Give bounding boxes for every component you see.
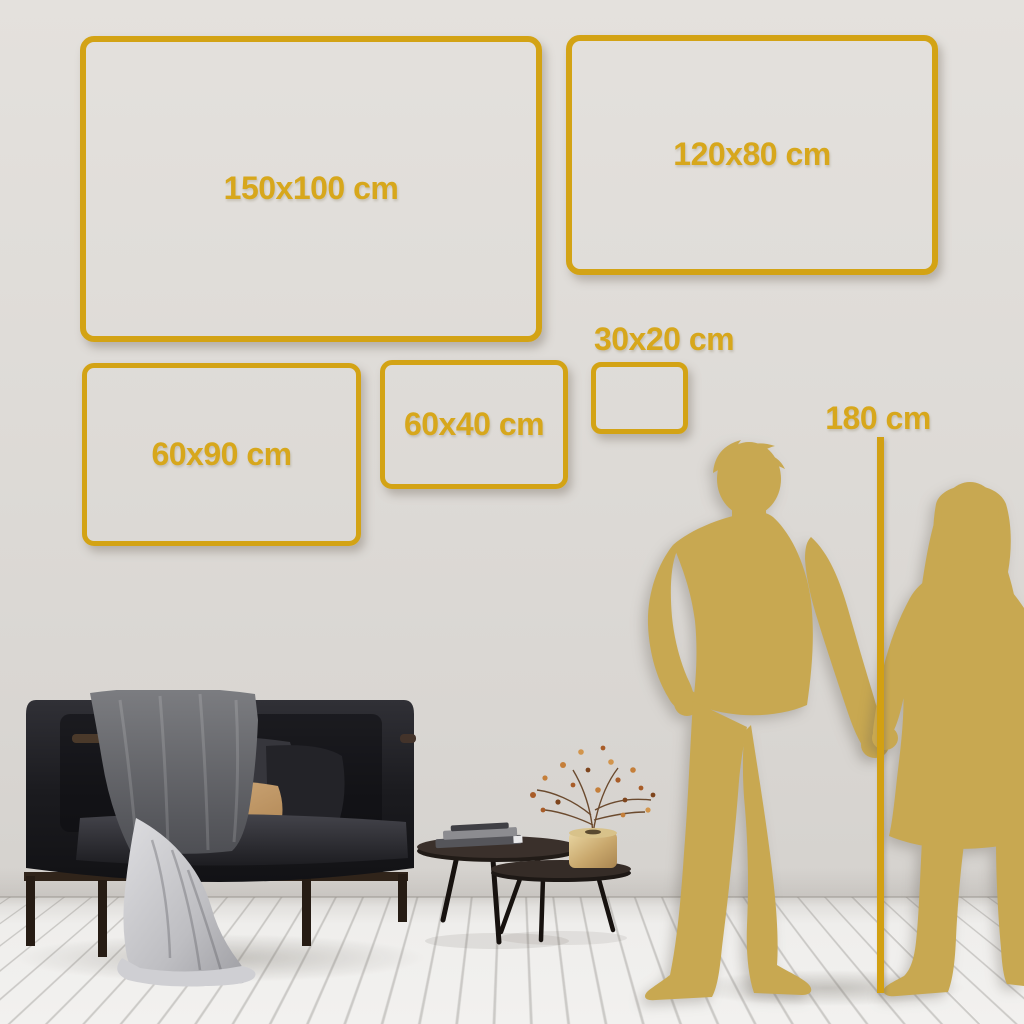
size-frame-120x80: 120x80 cm: [566, 35, 938, 275]
dried-branch: [537, 768, 651, 833]
size-frame-60x90: 60x90 cm: [82, 363, 361, 546]
stacked-books: [435, 822, 523, 849]
size-frame-30x20: [591, 362, 688, 434]
height-reference-line: [877, 437, 884, 993]
size-frame-60x40: 60x40 cm: [380, 360, 568, 489]
sofa: [10, 690, 430, 990]
coffee-tables: [413, 740, 663, 960]
size-label-120x80: 120x80 cm: [673, 137, 830, 172]
man-torso: [673, 512, 813, 715]
woman-head: [941, 482, 999, 550]
size-frame-150x100: 150x100 cm: [80, 36, 542, 342]
woman-back-leg: [996, 840, 1024, 986]
woman-front-leg: [884, 840, 964, 996]
man-left-leg: [645, 701, 747, 1000]
small-table-legs: [501, 876, 613, 940]
size-label-60x90: 60x90 cm: [151, 437, 291, 472]
woman-hand: [872, 726, 898, 750]
table-shadow-2: [499, 931, 627, 945]
height-reference-label: 180 cm: [816, 401, 940, 436]
size-label-30x20: 30x20 cm: [586, 322, 742, 357]
man-right-leg: [743, 725, 811, 995]
size-label-60x40: 60x40 cm: [404, 407, 544, 442]
size-guide-scene: 150x100 cm 120x80 cm 60x90 cm 60x40 cm 3…: [0, 0, 1024, 1024]
size-label-150x100: 150x100 cm: [224, 171, 399, 206]
brass-vase-opening: [585, 830, 601, 835]
